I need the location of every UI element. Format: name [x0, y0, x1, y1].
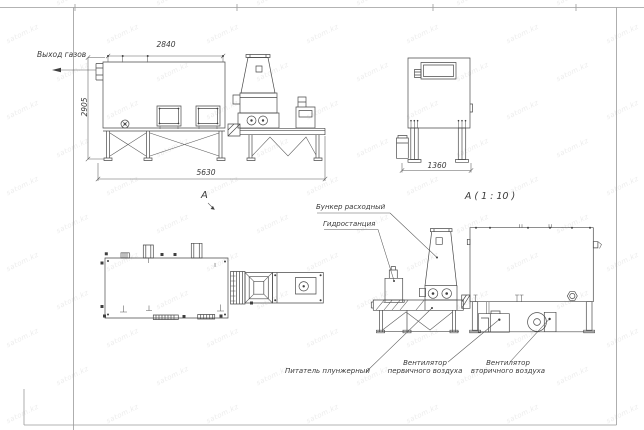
- dim-5630-label: 5630: [192, 169, 220, 177]
- dim-2840-label: 2840: [150, 41, 182, 49]
- gas-outlet-label: Выход газов: [37, 51, 86, 59]
- view-a-marker: А: [201, 192, 208, 200]
- callout-hopper-label: Бункер расходный: [316, 203, 385, 211]
- callout-primary-fan-label: Вентилятор первичного воздуха: [383, 360, 467, 375]
- dim-1360-label: 1360: [424, 162, 450, 170]
- dim-2905-label: 2905: [81, 96, 89, 118]
- front-view-linework: [52, 54, 327, 210]
- detail-view-linework: [317, 213, 602, 372]
- drawing-sheet: satom.kzsatom.kzsatom.kzsatom.kzsatom.kz…: [0, 0, 644, 430]
- detail-view-title: А ( 1 : 10 ): [450, 193, 530, 201]
- callout-hydraulic-label: Гидростанция: [323, 220, 375, 228]
- callout-secondary-fan-label: Вентилятор вторичного воздуха: [466, 360, 550, 375]
- callout-feeder-label: Питатель плунжерный: [285, 367, 370, 375]
- side-view-linework: [397, 58, 474, 173]
- plan-view-linework: [101, 243, 324, 319]
